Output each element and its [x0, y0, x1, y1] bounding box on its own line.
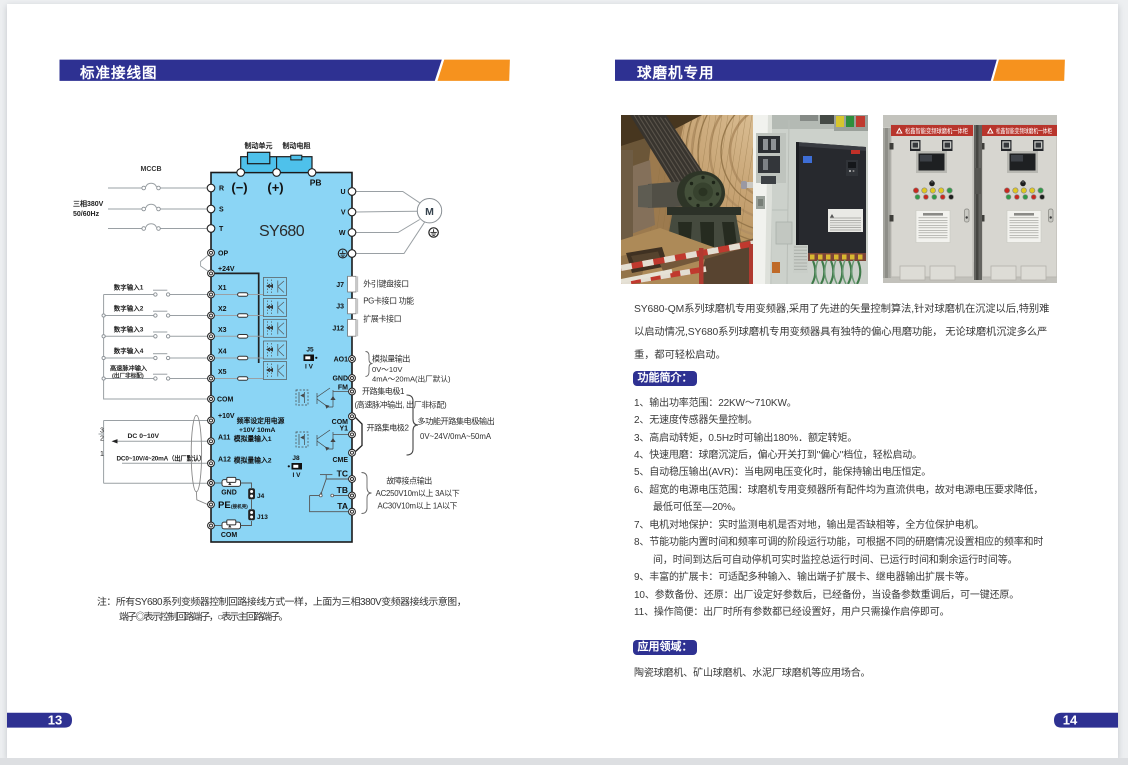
svg-text:AO1: AO1 [334, 357, 349, 364]
svg-text:AC30V10m以上 1A以下: AC30V10m以上 1A以下 [378, 501, 458, 510]
svg-text:+24V: +24V [218, 266, 235, 273]
svg-text:J7: J7 [336, 282, 344, 289]
svg-text:外引键盘接口: 外引键盘接口 [363, 278, 409, 288]
svg-text:GND: GND [221, 490, 237, 497]
svg-text:PB: PB [310, 178, 322, 188]
svg-text:频率设定用电源: 频率设定用电源 [237, 416, 285, 425]
svg-text:X1: X1 [218, 285, 227, 292]
svg-text:(出厂非标配): (出厂非标配) [112, 372, 144, 380]
svg-text:U: U [340, 189, 345, 196]
svg-text:X3: X3 [218, 327, 227, 334]
svg-text:Y1: Y1 [339, 426, 348, 433]
svg-text:(+): (+) [267, 180, 283, 195]
svg-text:数字输入3: 数字输入3 [114, 324, 144, 333]
svg-text:13: 13 [48, 713, 62, 728]
svg-text:X2: X2 [218, 306, 227, 313]
svg-text:AC250V10m以上 3A以下: AC250V10m以上 3A以下 [376, 489, 460, 498]
svg-text:开路集电极1: 开路集电极1 [362, 386, 405, 396]
svg-text:J13: J13 [257, 514, 268, 521]
svg-text:三相380V: 三相380V [73, 199, 104, 208]
svg-text:MCCB: MCCB [141, 166, 162, 173]
svg-text:SY680: SY680 [259, 223, 305, 240]
svg-text:CME: CME [332, 457, 348, 464]
svg-text:模拟量输入2: 模拟量输入2 [234, 455, 272, 464]
svg-text:X4: X4 [218, 349, 227, 356]
svg-text:J8: J8 [292, 455, 300, 462]
svg-text:X5: X5 [218, 369, 227, 376]
svg-text:PE: PE [218, 500, 231, 511]
svg-text:制动单元: 制动单元 [245, 141, 273, 150]
svg-text:T: T [219, 226, 224, 233]
svg-text:S: S [219, 207, 224, 214]
svg-text:OP: OP [218, 250, 228, 257]
svg-text:4mA～20mA(出厂默认): 4mA～20mA(出厂默认) [372, 373, 451, 383]
svg-text:GND: GND [332, 376, 348, 383]
svg-text:14: 14 [1063, 713, 1078, 728]
svg-text:0V~24V/0mA~50mA: 0V~24V/0mA~50mA [420, 432, 492, 441]
svg-text:A11: A11 [218, 435, 231, 442]
svg-text:R: R [219, 186, 224, 193]
svg-text:M: M [425, 206, 434, 218]
svg-text:高速脉冲输入: 高速脉冲输入 [110, 364, 148, 372]
svg-text:+10V 10mA: +10V 10mA [239, 427, 276, 434]
svg-text:PG卡接口 功能: PG卡接口 功能 [363, 296, 414, 306]
svg-text:J5: J5 [306, 347, 314, 354]
svg-text:COM: COM [221, 532, 238, 539]
svg-text:W: W [339, 230, 346, 237]
svg-text:(接机壳): (接机壳) [231, 503, 248, 510]
svg-text:J3: J3 [336, 304, 344, 311]
svg-text:TA: TA [337, 501, 348, 511]
svg-text:2: 2 [100, 436, 104, 443]
svg-text:松鑫智能变频球磨机一体柜: 松鑫智能变频球磨机一体柜 [905, 126, 969, 135]
svg-text:TC: TC [337, 469, 348, 479]
svg-text:0V～10V: 0V～10V [372, 365, 403, 374]
svg-text:3: 3 [100, 428, 104, 435]
svg-text:数字输入1: 数字输入1 [114, 283, 144, 292]
svg-text:模拟量输出: 模拟量输出 [372, 353, 410, 363]
svg-text:开路集电极2: 开路集电极2 [367, 422, 410, 432]
svg-text:DC 0~10V: DC 0~10V [128, 433, 160, 440]
svg-text:多功能开路集电极输出: 多功能开路集电极输出 [417, 416, 494, 426]
svg-text:(高速脉冲输出, 出厂非标配): (高速脉冲输出, 出厂非标配) [355, 400, 448, 410]
svg-text:数字输入2: 数字输入2 [114, 304, 144, 313]
svg-text:松鑫智能变频球磨机一体柜: 松鑫智能变频球磨机一体柜 [996, 126, 1052, 135]
svg-text:50/60Hz: 50/60Hz [73, 211, 100, 218]
svg-text:I V: I V [305, 364, 314, 371]
svg-text:制动电阻: 制动电阻 [283, 141, 311, 150]
svg-text:TB: TB [337, 485, 348, 495]
svg-text:模拟量输入1: 模拟量输入1 [234, 434, 272, 443]
svg-text:故障接点输出: 故障接点输出 [386, 475, 432, 485]
svg-text:DC0~10V/4~20mA（出厂默认）: DC0~10V/4~20mA（出厂默认） [117, 453, 206, 462]
svg-text:数字输入4: 数字输入4 [114, 346, 144, 355]
svg-text:V: V [341, 210, 346, 217]
svg-text:I V: I V [293, 472, 302, 479]
svg-text:J12: J12 [332, 326, 344, 333]
svg-text:扩展卡接口: 扩展卡接口 [363, 314, 401, 324]
svg-text:(−): (−) [231, 180, 247, 195]
svg-text:+10V: +10V [218, 413, 235, 420]
svg-text:A12: A12 [218, 457, 231, 464]
svg-text:FM: FM [338, 385, 348, 392]
svg-text:COM: COM [217, 397, 234, 404]
svg-text:1: 1 [100, 451, 104, 458]
svg-text:J4: J4 [257, 493, 265, 500]
